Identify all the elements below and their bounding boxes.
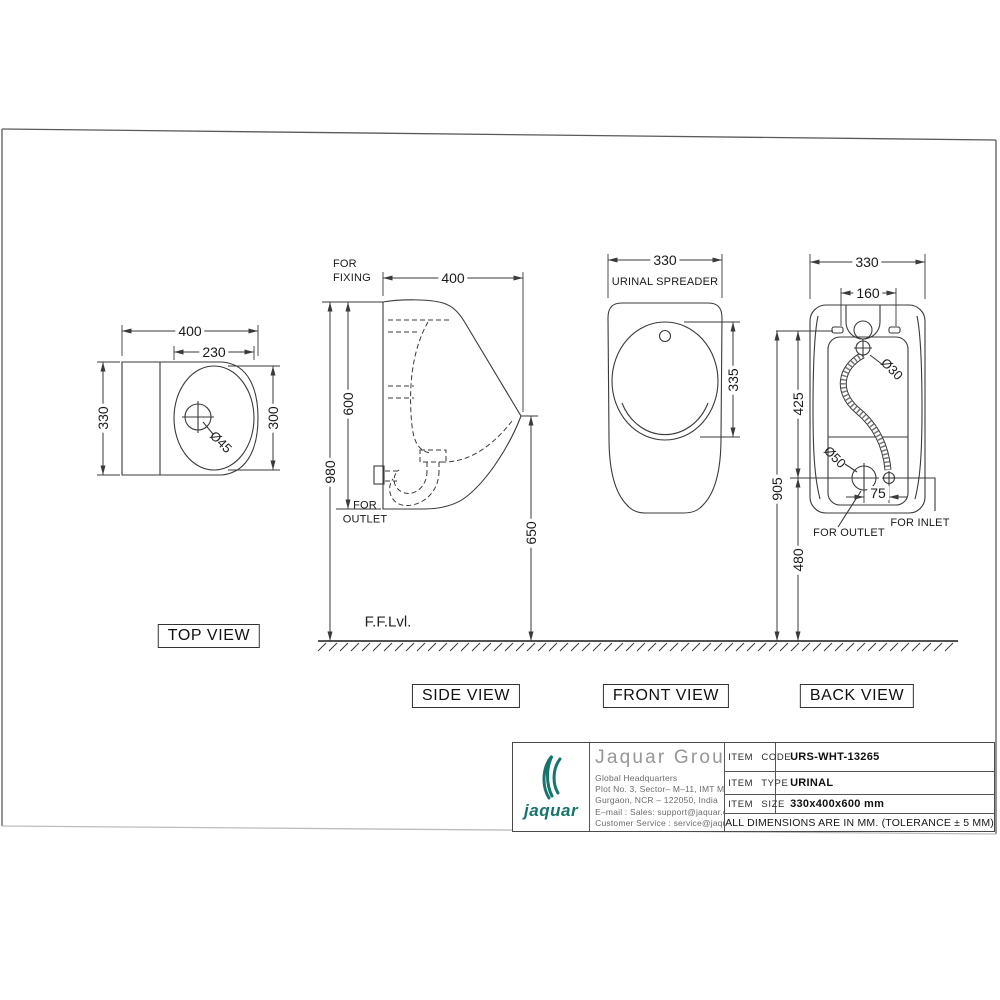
item-code-label: ITEM CODE	[725, 743, 776, 771]
side-view-geometry	[322, 272, 538, 641]
company-address1: Plot No. 3, Sector– M–11, IMT Manesar	[595, 784, 724, 795]
dim-top-depth: 330	[96, 403, 110, 432]
dim-side-body-height: 600	[341, 389, 355, 418]
brand-wordmark: jaquar	[524, 801, 578, 821]
brand-logo: jaquar	[513, 743, 590, 831]
note-for-inlet-back: FOR INLET	[890, 516, 949, 530]
dim-back-width: 330	[852, 255, 881, 269]
back-view-geometry	[776, 254, 935, 641]
tolerance-note-row: ALL DIMENSIONS ARE IN MM. (TOLERANCE ± 5…	[725, 814, 994, 831]
company-hq: Global Headquarters	[595, 773, 724, 784]
drawing-canvas	[0, 0, 1000, 1000]
dim-side-fixing-height: 980	[323, 457, 337, 486]
dim-back-holes-span: 160	[853, 286, 882, 300]
note-for-fixing: FOR FIXING	[333, 257, 385, 286]
floor-level-label: F.F.Lvl.	[365, 614, 412, 631]
side-view-label: SIDE VIEW	[412, 684, 520, 708]
dim-top-basin-depth: 300	[266, 403, 280, 432]
item-size-label: ITEM SIZE	[725, 795, 776, 813]
dim-side-depth: 400	[438, 271, 467, 285]
dim-top-width: 400	[175, 324, 204, 338]
dim-front-width: 330	[650, 253, 679, 267]
item-type-row: ITEM TYPE URINAL	[725, 772, 994, 795]
item-type-label: ITEM TYPE	[725, 772, 776, 794]
dim-back-outlet-offset: 75	[867, 486, 889, 500]
page-border	[2, 129, 996, 834]
dim-front-bowl-height: 335	[726, 365, 740, 394]
title-block: jaquar Jaquar Group Global Headquarters …	[512, 742, 995, 832]
note-urinal-spreader: URINAL SPREADER	[612, 275, 719, 289]
drawing-sheet: 400 230 330 300 Ø45 FOR FIXING 400 600 9…	[0, 0, 1000, 1000]
note-for-outlet-back: FOR OUTLET	[813, 526, 885, 540]
company-address2: Gurgaon, NCR – 122050, India	[595, 795, 724, 806]
tolerance-note: ALL DIMENSIONS ARE IN MM. (TOLERANCE ± 5…	[725, 814, 994, 831]
item-size-row: ITEM SIZE 330x400x600 mm	[725, 795, 994, 814]
floor-line	[318, 641, 958, 651]
item-code-row: ITEM CODE URS-WHT-13265	[725, 743, 994, 772]
item-fields: ITEM CODE URS-WHT-13265 ITEM TYPE URINAL…	[725, 743, 994, 831]
company-email: E–mail : Sales: support@jaquar.com	[595, 807, 724, 818]
back-view-label: BACK VIEW	[800, 684, 914, 708]
dim-back-fix-height: 905	[770, 474, 784, 503]
item-size-value: 330x400x600 mm	[776, 795, 994, 813]
dim-back-fix-to-outlet: 425	[791, 389, 805, 418]
top-view-geometry	[97, 325, 280, 475]
dim-back-outlet-to-floor: 480	[791, 545, 805, 574]
dim-side-spout-height: 650	[524, 518, 538, 547]
company-customer-service: Customer Service : service@jaquar.com	[595, 818, 724, 829]
front-view-label: FRONT VIEW	[603, 684, 729, 708]
top-view-label: TOP VIEW	[158, 624, 260, 648]
jaquar-logo-icon	[534, 754, 568, 800]
front-view-geometry	[608, 254, 740, 513]
dim-top-inner-width: 230	[199, 345, 228, 359]
item-type-value: URINAL	[776, 772, 994, 794]
item-code-value: URS-WHT-13265	[776, 743, 994, 771]
company-info: Jaquar Group Global Headquarters Plot No…	[590, 743, 725, 831]
note-for-outlet-side: FOR OUTLET	[337, 499, 393, 528]
company-name: Jaquar Group	[595, 747, 724, 769]
